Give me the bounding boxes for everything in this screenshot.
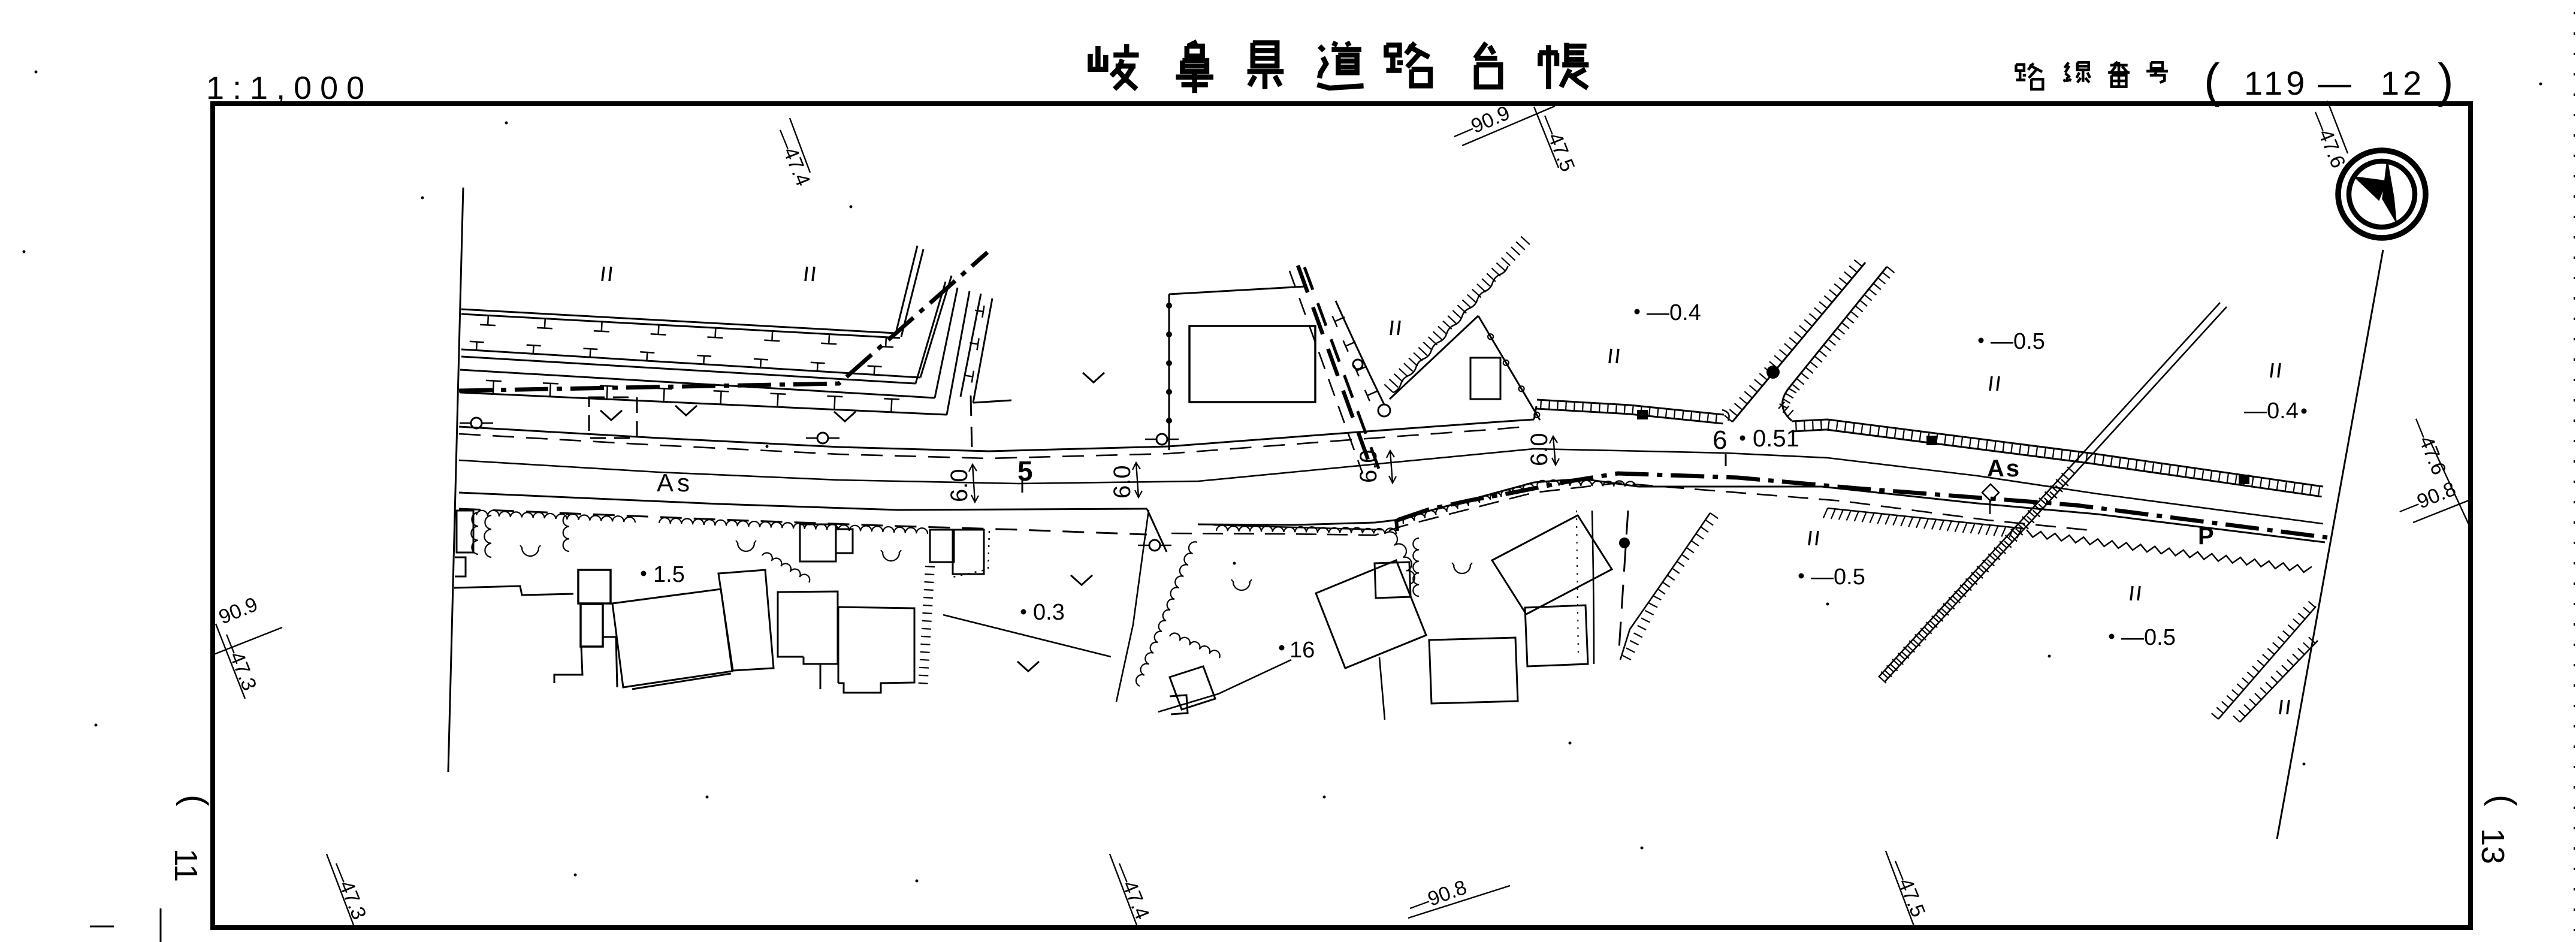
- svg-text:0.51: 0.51: [1753, 425, 1799, 452]
- svg-text:12: 12: [2381, 64, 2425, 102]
- svg-text:(: (: [176, 795, 215, 806]
- svg-text:6: 6: [1713, 425, 1727, 455]
- svg-text:—0.5: —0.5: [1991, 329, 2045, 354]
- svg-text:1:1,000: 1:1,000: [206, 70, 373, 106]
- svg-text:—0.4: —0.4: [2244, 398, 2299, 424]
- svg-text:6.0: 6.0: [946, 469, 973, 502]
- svg-text:6.0: 6.0: [1109, 465, 1136, 499]
- svg-text:—0.5: —0.5: [2121, 625, 2176, 650]
- svg-text:—0.4: —0.4: [1647, 300, 1701, 325]
- svg-text:119: 119: [2244, 64, 2308, 102]
- svg-text:(: (: [2484, 795, 2523, 806]
- svg-text:6.0: 6.0: [1355, 449, 1382, 483]
- svg-text:): ): [2438, 54, 2454, 107]
- svg-text:1.5: 1.5: [653, 562, 685, 587]
- svg-text:11: 11: [168, 849, 204, 882]
- svg-text:(: (: [2204, 54, 2220, 107]
- svg-text:As: As: [1987, 455, 2021, 482]
- svg-text:P: P: [2198, 523, 2214, 549]
- svg-text:6.0: 6.0: [1526, 433, 1553, 466]
- svg-text:—: —: [2318, 64, 2351, 102]
- svg-text:As: As: [657, 469, 693, 497]
- svg-text:13: 13: [2475, 828, 2511, 864]
- svg-text:0.3: 0.3: [1033, 600, 1065, 625]
- svg-text:16: 16: [1289, 638, 1315, 663]
- svg-text:5: 5: [1017, 455, 1033, 487]
- svg-text:—0.5: —0.5: [1811, 564, 1865, 590]
